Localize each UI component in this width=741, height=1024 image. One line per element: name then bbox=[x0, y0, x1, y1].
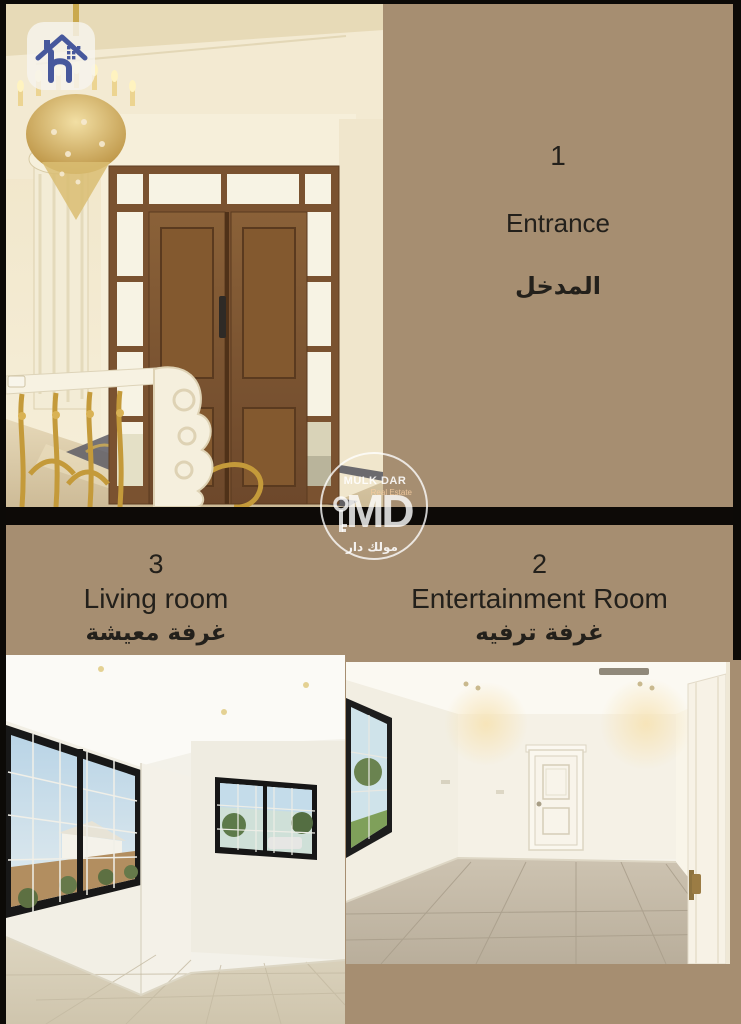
watermark-brand-arabic: مولك دار bbox=[320, 540, 424, 554]
living-number: 3 bbox=[0, 549, 312, 580]
listing-collage: 1 Entrance المدخل 3 Living room غرفة معي… bbox=[0, 0, 741, 1024]
agency-watermark: MULK DAR Real Estate MD مولك دار bbox=[320, 452, 430, 564]
living-room-photo bbox=[6, 655, 345, 1024]
entertainment-name-ar: غرفة ترفيه bbox=[346, 620, 733, 646]
frame-border-right bbox=[733, 0, 741, 660]
entrance-name-en: Entrance bbox=[383, 208, 733, 239]
entertainment-name-en: Entertainment Room bbox=[346, 583, 733, 615]
house-logo-icon bbox=[27, 22, 95, 90]
house-logo-badge bbox=[27, 22, 95, 90]
frame-border-left bbox=[0, 0, 6, 1024]
entrance-name-ar: المدخل bbox=[383, 272, 733, 300]
entrance-number: 1 bbox=[383, 140, 733, 172]
living-name-en: Living room bbox=[0, 583, 312, 615]
living-room-label: 3 Living room غرفة معيشة bbox=[0, 525, 312, 655]
living-name-ar: غرفة معيشة bbox=[0, 620, 312, 646]
entertainment-room-photo bbox=[346, 662, 730, 964]
entrance-label-panel: 1 Entrance المدخل bbox=[383, 0, 733, 507]
frame-border-top bbox=[0, 0, 741, 4]
watermark-monogram: MD bbox=[346, 488, 412, 534]
